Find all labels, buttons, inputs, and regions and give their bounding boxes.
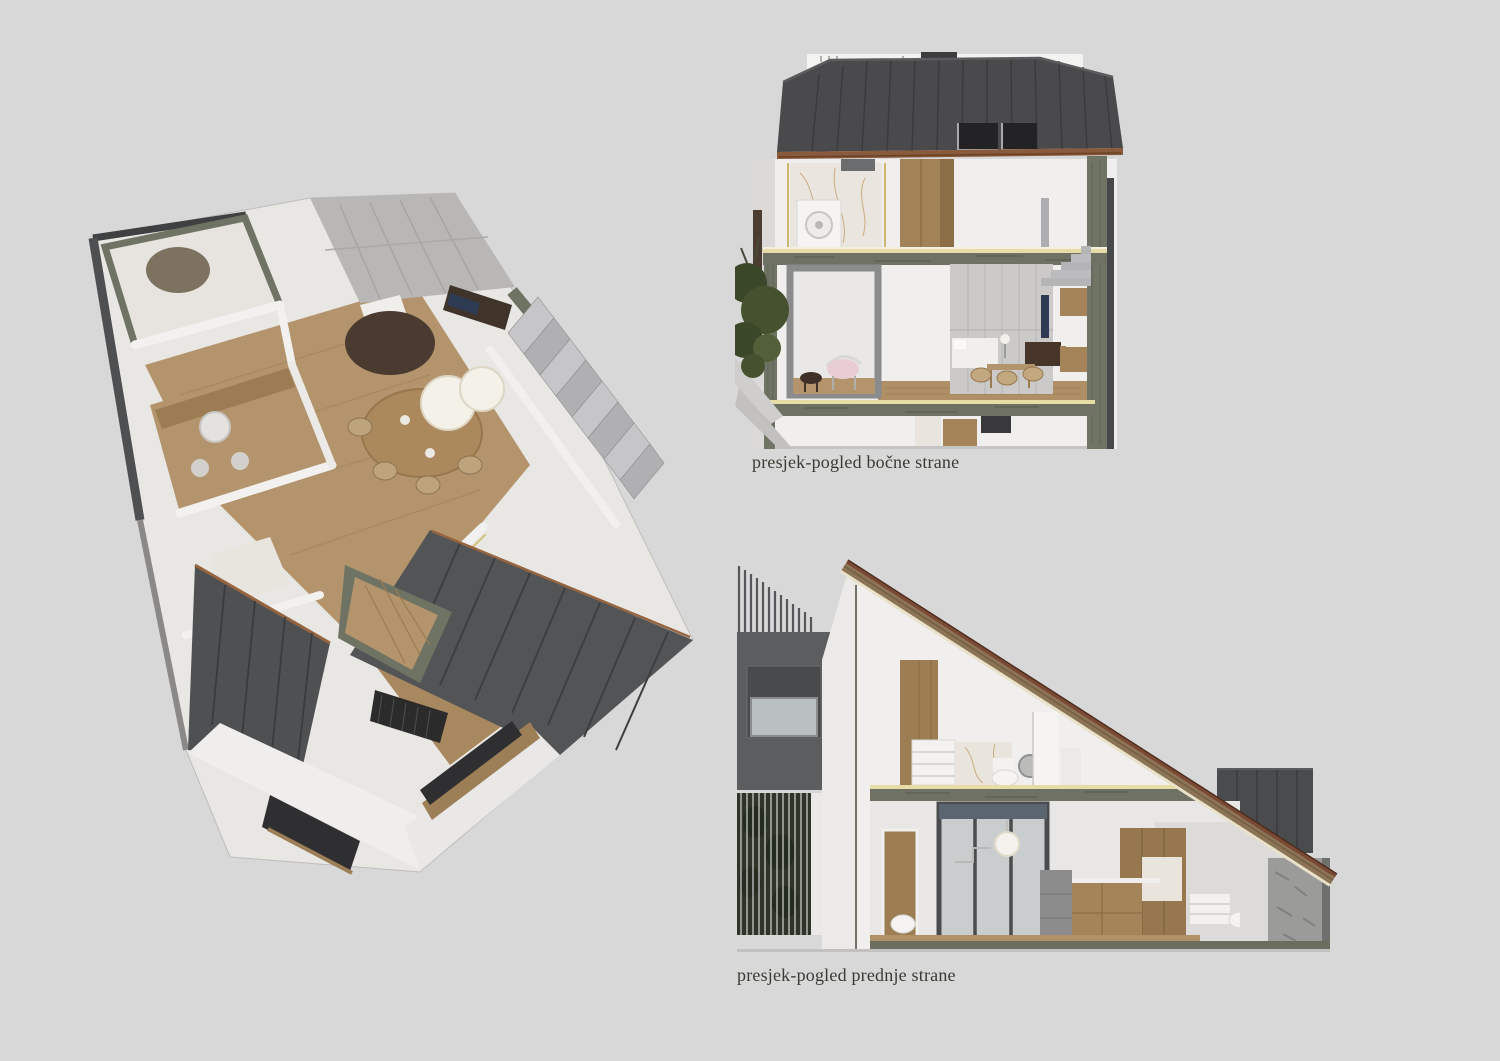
slat-screen-top	[739, 566, 811, 632]
round-table	[146, 247, 210, 293]
side-section-render	[735, 48, 1130, 450]
stool	[191, 459, 209, 477]
ground-slab	[870, 941, 1330, 949]
floor-slab	[870, 785, 1200, 801]
skylight	[1002, 123, 1037, 150]
shelf-unit	[1190, 894, 1230, 924]
toilet	[992, 770, 1018, 786]
presentation-sheet: presjek-pogled bočne strane presjek-pogl…	[0, 0, 1500, 1061]
caption-front-section: presjek-pogled prednje strane	[737, 965, 956, 986]
round-rug	[345, 311, 435, 375]
shelf-unit	[912, 740, 955, 785]
side-table	[800, 372, 822, 384]
slat-screen-bottom	[737, 793, 811, 935]
front-section-render	[725, 552, 1355, 957]
basement	[775, 416, 1087, 449]
floor-plan-render	[60, 165, 720, 905]
lower-interior	[870, 801, 1251, 945]
tv	[1041, 295, 1049, 338]
glass-door	[939, 804, 1047, 945]
roof	[777, 58, 1123, 159]
skylight	[958, 123, 998, 150]
stool	[231, 452, 249, 470]
bottom-slab	[763, 400, 1095, 416]
chair	[200, 412, 230, 442]
floor-slab	[763, 247, 1107, 265]
pendant-lamp	[995, 832, 1019, 856]
pendant-lamp	[460, 367, 504, 411]
caption-side-section: presjek-pogled bočne strane	[752, 452, 959, 473]
media-cabinet	[1025, 342, 1061, 366]
gable-edge	[822, 564, 857, 950]
toilet	[891, 915, 915, 933]
